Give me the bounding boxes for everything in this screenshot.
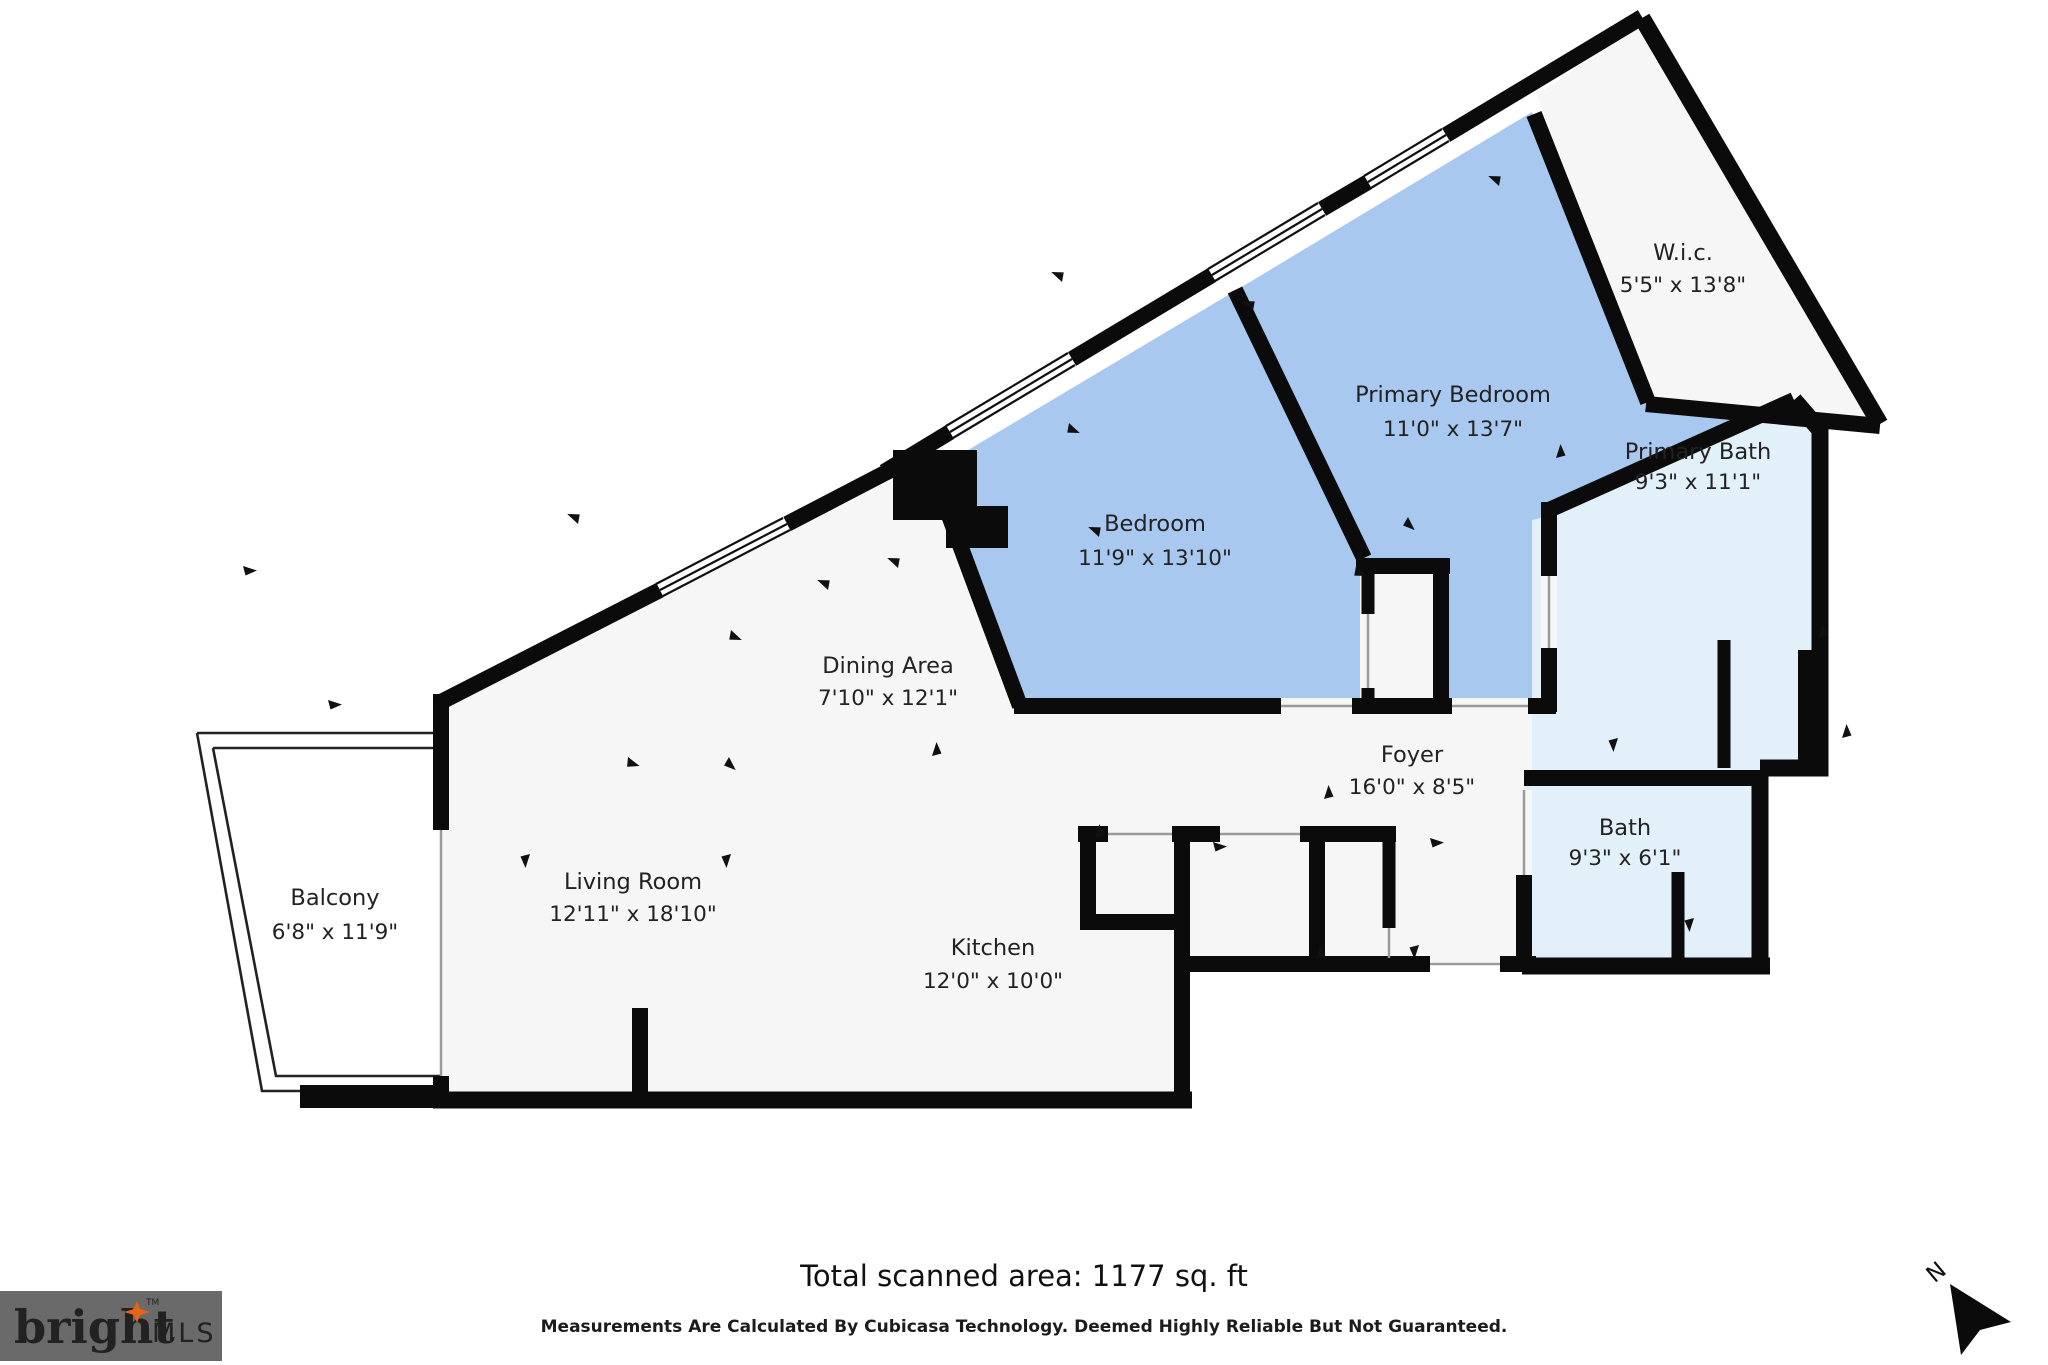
svg-text:Primary Bedroom: Primary Bedroom [1355,382,1551,408]
svg-text:16'0" x 8'5": 16'0" x 8'5" [1349,775,1475,800]
disclaimer-text: Measurements Are Calculated By Cubicasa … [541,1317,1508,1337]
svg-text:6'8" x 11'9": 6'8" x 11'9" [272,920,398,945]
svg-text:11'9" x 13'10": 11'9" x 13'10" [1078,546,1232,571]
svg-text:9'3" x 6'1": 9'3" x 6'1" [1569,846,1682,871]
brightmls-logo: bright TM MLS [0,1291,222,1361]
closet-hall-2-floor [1186,834,1317,964]
closet-hall-1-floor [1088,834,1186,926]
svg-text:12'11" x 18'10": 12'11" x 18'10" [549,902,716,927]
svg-text:Kitchen: Kitchen [951,935,1036,961]
svg-text:W.i.c.: W.i.c. [1653,240,1713,266]
svg-text:Bath: Bath [1599,815,1651,841]
svg-text:Primary Bath: Primary Bath [1625,439,1771,465]
svg-text:12'0" x 10'0": 12'0" x 10'0" [923,969,1063,994]
room-bath-floor [1524,782,1756,962]
svg-text:Bedroom: Bedroom [1104,511,1206,537]
floorplan-canvas: W.i.c. 5'5" x 13'8" Primary Bedroom 11'0… [0,0,2048,1365]
logo-mls-text: MLS [152,1318,216,1349]
floorplan-page: W.i.c. 5'5" x 13'8" Primary Bedroom 11'0… [0,0,2048,1365]
svg-text:5'5" x 13'8": 5'5" x 13'8" [1620,273,1746,298]
logo-tm-text: TM [145,1298,159,1308]
svg-text:7'10" x 12'1": 7'10" x 12'1" [818,686,958,711]
north-label: N [1922,1257,1952,1288]
north-arrow-icon: N [1922,1257,2011,1355]
svg-text:9'3" x 11'1": 9'3" x 11'1" [1635,470,1761,495]
svg-text:11'0" x 13'7": 11'0" x 13'7" [1383,417,1523,442]
svg-text:Living Room: Living Room [564,869,702,895]
svg-text:Foyer: Foyer [1381,742,1444,768]
total-scanned-area: Total scanned area: 1177 sq. ft [799,1259,1248,1293]
svg-text:Dining Area: Dining Area [822,653,954,679]
closet-hall-3-floor [1317,834,1391,964]
svg-text:Balcony: Balcony [290,885,379,911]
